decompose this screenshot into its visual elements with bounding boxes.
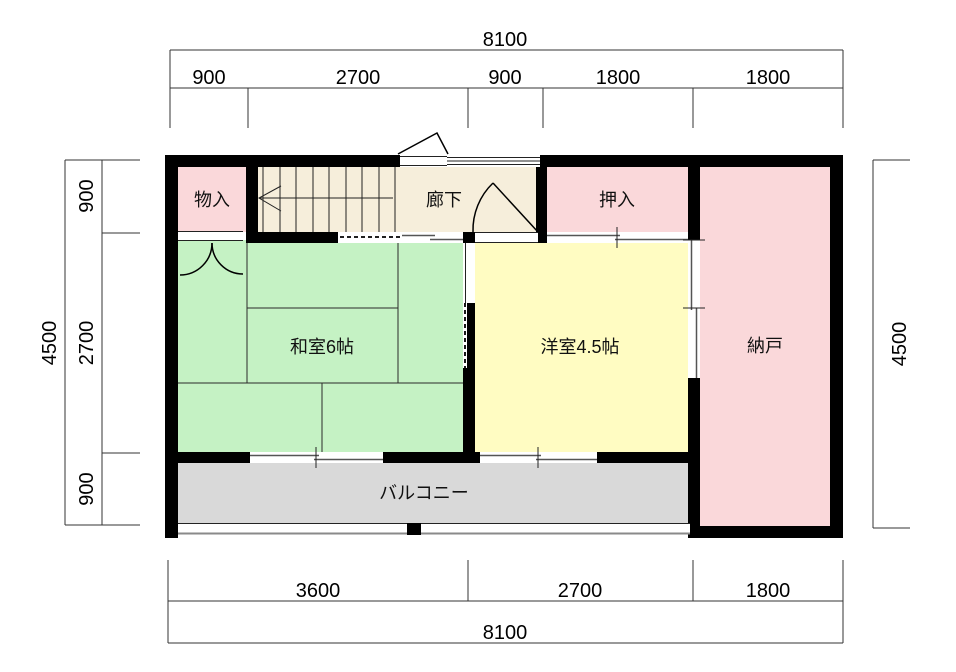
wall-nando-bottom <box>688 526 843 538</box>
label-balcony: バルコニー <box>379 483 469 503</box>
dim-top-seg-0: 900 <box>192 67 225 89</box>
dim-ruler-bottom: 3600 2700 1800 8100 <box>168 560 843 644</box>
dim-left-seg-1: 2700 <box>76 321 98 366</box>
dim-right-total: 4500 <box>889 322 911 367</box>
dim-top-seg-4: 1800 <box>746 67 791 89</box>
railing-post <box>407 523 421 535</box>
wall-bottom-youshitsu-right <box>597 452 700 463</box>
dim-left-seg-0: 900 <box>76 179 98 212</box>
wall-exterior-left <box>165 155 178 538</box>
floor-plan-canvas: 物入 廊下 押入 納戸 和室6帖 洋室4.5帖 バルコニー 8100 900 2… <box>0 0 956 672</box>
wall-stairs-bottom <box>246 232 340 243</box>
label-oshiire: 押入 <box>599 190 635 210</box>
label-youshitsu: 洋室4.5帖 <box>540 337 619 357</box>
washitsu-youshitsu-opening <box>463 243 475 303</box>
washitsu-slider-opening <box>402 232 463 243</box>
dim-left-seg-2: 900 <box>76 472 98 505</box>
label-nando: 納戸 <box>747 336 783 356</box>
dim-top-seg-1: 2700 <box>336 67 381 89</box>
room-fills <box>178 167 830 526</box>
wall-monoire-stairs <box>246 155 258 243</box>
dim-top-seg-2: 900 <box>488 67 521 89</box>
balcony-railing <box>178 523 690 535</box>
dim-bottom-seg-2: 1800 <box>746 580 791 602</box>
label-monoire: 物入 <box>194 190 230 210</box>
dim-left-total: 4500 <box>39 321 61 366</box>
outswing-door-icon <box>398 133 448 154</box>
railing-band <box>178 524 690 533</box>
label-corridor: 廊下 <box>426 190 462 210</box>
room-corridor-fill <box>258 167 536 232</box>
wall-bottom-center <box>383 452 480 463</box>
wall-corridor-oshiire <box>536 155 547 243</box>
wall-exterior-right <box>830 155 843 538</box>
wall-bottom-washitsu-left <box>165 452 250 463</box>
label-washitsu: 和室6帖 <box>290 337 354 357</box>
monoire-door-opening <box>178 231 243 241</box>
dim-ruler-top: 8100 900 2700 900 1800 1800 <box>170 29 843 128</box>
youshitsu-door-opening <box>475 232 538 243</box>
dim-bottom-seg-0: 3600 <box>296 580 341 602</box>
dim-bottom-total: 8100 <box>483 622 528 644</box>
floor-plan: 物入 廊下 押入 納戸 和室6帖 洋室4.5帖 バルコニー 8100 900 2… <box>0 0 956 672</box>
wall-stub-corridor <box>463 232 475 243</box>
dim-top-seg-3: 1800 <box>596 67 641 89</box>
dim-top-total: 8100 <box>483 29 528 51</box>
nando-slider-opening <box>688 240 700 378</box>
dim-ruler-left: 4500 900 2700 900 <box>39 160 140 525</box>
dim-bottom-seg-1: 2700 <box>558 580 603 602</box>
dim-top-lines <box>170 50 843 128</box>
dim-ruler-right: 4500 <box>873 160 911 528</box>
